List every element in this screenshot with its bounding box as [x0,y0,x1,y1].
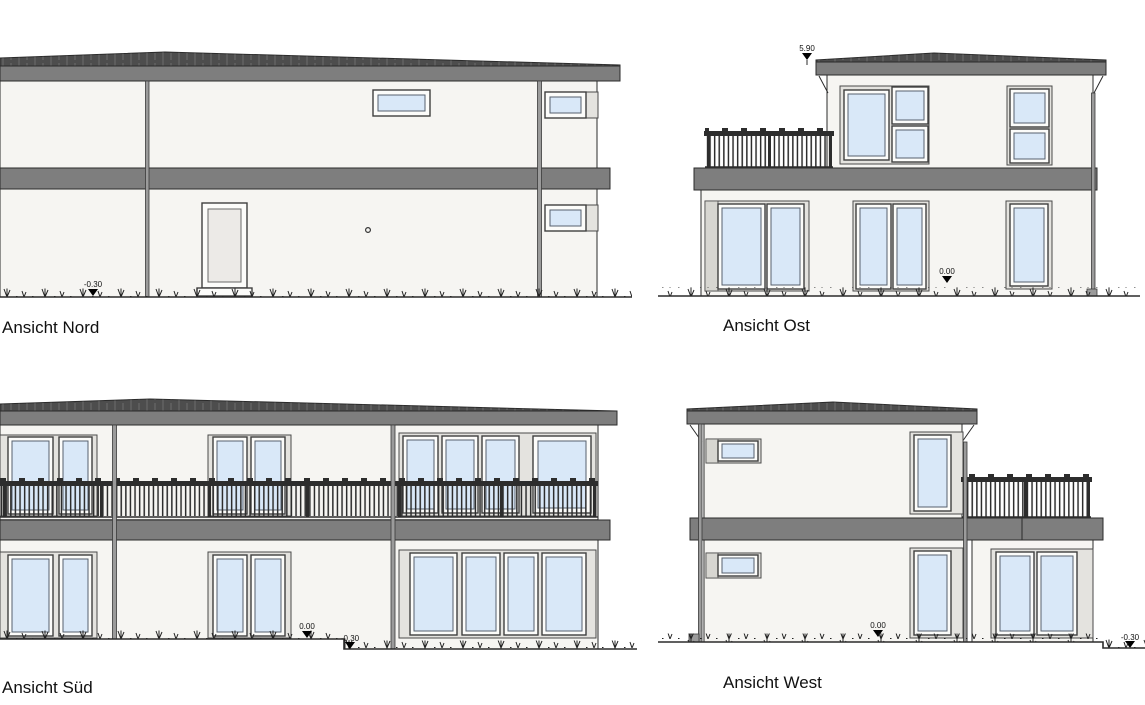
level-marker-roof: 5.90 [799,44,815,65]
window-glass [550,210,581,226]
window-glass [918,555,947,631]
view-label: Ansicht Süd [2,678,93,697]
railing-caps [962,474,1091,477]
view-label: Ansicht Nord [2,318,99,337]
downspout [146,81,150,297]
floor-slab [0,168,610,189]
window-glass [771,208,800,285]
entrance-door [197,203,252,296]
railing-post [768,131,771,167]
window [208,552,291,638]
railing-post [3,481,6,517]
window-glass [1014,133,1045,159]
elevations-drawing: -0.30 Ansicht Nord [0,0,1145,700]
railing-post [829,131,832,167]
window [705,201,809,291]
downspout [964,442,968,642]
shutter-strip [706,439,718,463]
railing-caps [705,128,832,131]
window-glass [1014,93,1045,123]
window-glass [217,559,243,632]
railing-post [707,131,710,167]
shutter-strip [706,553,718,578]
window-glass [414,557,453,631]
railing-post [593,481,596,517]
drawing-sheet: -0.30 Ansicht Nord [0,0,1145,700]
window [910,432,963,514]
elevation-west: 0.00 -0.30 Ansicht West [658,402,1145,692]
railing-post [500,481,503,517]
downspout [391,425,395,649]
level-value: 5.90 [799,44,815,53]
railing-balusters [0,486,598,516]
railing-post [1024,477,1027,517]
window-glass [546,557,582,631]
window-glass [12,559,49,632]
roof-fascia [687,411,977,424]
downspout [113,425,117,639]
grass [658,634,1103,643]
ground-line [658,642,1145,648]
railing-post [208,481,211,517]
window-glass [897,208,922,285]
window [545,205,598,231]
window-glass [550,97,581,113]
railing-handrail [0,481,598,486]
window-glass [896,91,924,120]
roof-fascia [0,411,617,425]
grass [0,631,344,640]
window-glass [63,559,88,632]
downspout [538,81,542,297]
level-value: 0.00 [939,267,955,276]
window-glass [1041,556,1073,631]
window [399,550,596,638]
window-glass [1014,208,1044,282]
floor-slab [694,168,1097,190]
roof-tiles [0,52,620,66]
level-value: 0.00 [870,621,886,630]
window-glass [722,558,754,573]
window [1006,201,1052,289]
view-label: Ansicht Ost [723,316,810,335]
window-glass [896,130,924,158]
elevation-south: 0.00 -0.30 Ansicht Süd [0,399,637,697]
roof-fascia [0,66,620,81]
window-glass [918,439,947,507]
grass [345,641,637,650]
roof-fascia [816,62,1106,75]
window [840,86,929,164]
railing-post [100,481,103,517]
level-value: 0.00 [299,622,315,631]
view-label: Ansicht West [723,673,822,692]
grass [1103,640,1145,649]
elevation-east: 5.90 0.00 Ansicht Ost [658,44,1140,335]
floor-slab [690,518,1103,540]
window [706,553,761,578]
window [991,549,1093,638]
balcony-railing [961,474,1092,517]
railing-post [306,481,309,517]
level-value: -0.30 [84,280,103,289]
downspout [699,424,703,642]
floor-slab [0,520,610,540]
window-glass [466,557,496,631]
railing-caps [0,478,598,481]
window [373,90,430,116]
window-glass [378,95,425,111]
window-glass [860,208,887,285]
window-glass [848,94,885,156]
window [1007,86,1052,165]
window [0,552,97,638]
shutter-strip [705,201,718,291]
door-leaf [208,209,241,282]
level-triangle-icon [802,53,812,60]
downspout [1092,93,1096,296]
railing-post [398,481,401,517]
railing-post [1087,477,1090,517]
window [853,201,929,291]
level-value: -0.30 [341,634,360,643]
window-glass [255,559,281,632]
elevation-north: -0.30 Ansicht Nord [0,52,632,337]
window [545,92,598,118]
window-glass [508,557,534,631]
window [706,439,761,463]
window [910,548,963,638]
balcony-railing [0,478,598,520]
grass [658,288,1140,297]
window-glass [1000,556,1030,631]
roof-tiles [816,53,1106,62]
window-glass [722,208,761,285]
balcony-railing [704,128,834,167]
window-glass [722,444,754,458]
